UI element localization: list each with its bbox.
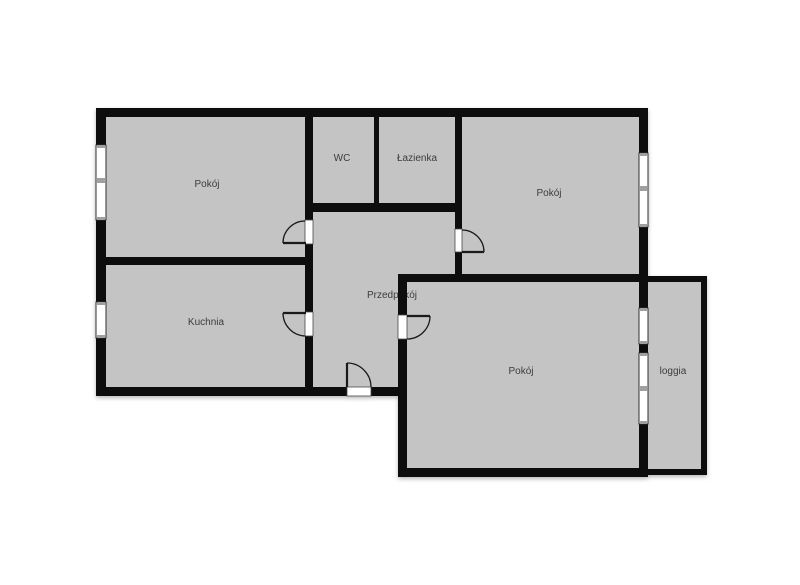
wall-mid-horizontal [398,274,648,282]
room-label-kuchnia: Kuchnia [188,317,225,328]
window-pokoj-top-right-divider-2 [640,224,647,227]
room-label-pokoj-bottom-right: Pokój [508,366,533,377]
wall-pokoj-br-left [398,274,407,477]
window-pokoj-top-left-divider-2 [97,217,105,220]
window-pokoj-br-upper-divider-1 [640,341,647,344]
window-kuchnia-pane [96,302,106,338]
wall-loggia-bottom [648,469,707,475]
room-label-pokoj-top-right: Pokój [536,188,561,199]
room-label-lazienka: Łazienka [397,153,437,164]
window-pokoj-br-upper [639,308,648,344]
window-pokoj-top-left [96,145,106,220]
window-pokoj-br-upper-pane [639,308,648,344]
door-pokoj-top-right-gap [455,229,462,252]
window-kuchnia-divider-0 [97,302,105,305]
window-pokoj-top-right-divider-0 [640,153,647,156]
wall-przedpokoj-right [455,108,462,282]
window-kuchnia-divider-1 [97,335,105,338]
window-balcony-door [639,353,648,424]
window-balcony-door-divider-0 [640,353,647,356]
door-kuchnia-gap [305,312,313,336]
window-pokoj-top-right-divider-1 [640,186,647,191]
window-pokoj-top-left-divider-1 [97,178,105,183]
wall-outer-top [96,108,648,117]
window-balcony-door-divider-2 [640,421,647,424]
floorplan-svg: PokójWCŁazienkaPokójKuchniaPrzedpokójPok… [0,0,800,585]
wall-loggia-right [701,276,707,475]
door-pokoj-top-left-gap [305,220,313,244]
door-entrance-gap [347,387,371,396]
room-label-loggia: loggia [660,366,687,377]
window-pokoj-br-upper-divider-0 [640,308,647,311]
wall-loggia-top [648,276,707,282]
room-label-wc: WC [334,153,351,164]
room-label-przedpokoj: Przedpokój [367,290,417,301]
floor-plan: PokójWCŁazienkaPokójKuchniaPrzedpokójPok… [0,0,800,585]
wall-pokoj-br-bottom [398,468,648,477]
wall-wc-lazienka-bottom [305,203,462,212]
window-pokoj-top-left-divider-0 [97,145,105,148]
wall-przedpokoj-left [305,108,313,396]
door-pokoj-bottom-right-gap [398,315,407,339]
wall-pokoj-kuchnia [96,257,313,265]
wall-wc-right [374,108,379,203]
window-pokoj-top-right [639,153,648,227]
room-label-pokoj-top-left: Pokój [194,179,219,190]
window-balcony-door-divider-1 [640,386,647,391]
window-kuchnia [96,302,106,338]
